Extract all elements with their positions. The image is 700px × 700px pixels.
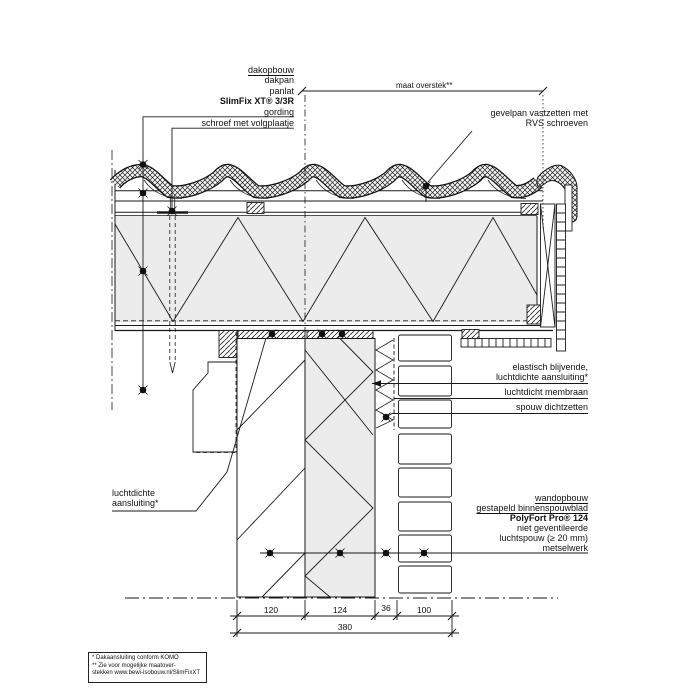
wall-stack-item-metselwerk: metselwerk <box>476 543 588 553</box>
wall-insulation <box>305 339 375 598</box>
dim-segment-120: 120 <box>251 605 291 615</box>
wall-stack-title: wandopbouw <box>476 493 588 503</box>
roof-section <box>115 165 577 351</box>
roof-stack-item-dakpan: dakpan <box>220 75 294 85</box>
roof-stack-item-slimfix: SlimFix XT® 3/3R <box>220 96 294 106</box>
overhang-dim-label: maat overstek** <box>396 81 452 91</box>
footnote-box: * Dakaansluiting conform KOMO ** Zie voo… <box>88 652 207 683</box>
wall-section <box>193 331 452 598</box>
verge-tile-label: gevelpan vastzetten met RVS schroeven <box>490 108 588 129</box>
detail-drawing <box>0 0 700 700</box>
wall-stack-label: wandopbouw gestapeld binnenspouwblad Pol… <box>476 493 588 553</box>
roof-stack-label: dakopbouw dakpan panlat SlimFix XT® 3/3R… <box>220 65 294 117</box>
dim-segment-36: 36 <box>366 603 406 613</box>
membrane-label: luchtdicht membraan <box>504 387 588 397</box>
airtight-left-label-line1: luchtdichte <box>112 488 159 498</box>
cavity-close-label: spouw dichtzetten <box>516 402 588 412</box>
footnote-line2: ** Zie voor mogelijke maatover- <box>92 663 206 671</box>
dim-total-380: 380 <box>325 622 365 632</box>
ventilation-comb-vertical <box>557 204 566 351</box>
elastic-seal-label-line1: elastisch blijvende, <box>496 362 588 372</box>
elastic-seal-label: elastisch blijvende, luchtdichte aanslui… <box>496 362 588 383</box>
construction-detail-page: dakopbouw dakpan panlat SlimFix XT® 3/3R… <box>0 0 700 700</box>
roof-stack-title: dakopbouw <box>220 65 294 75</box>
roof-tiles <box>115 171 538 199</box>
footnote-line3: stekken www.bewi-isobouw.nl/SlimFixXT <box>92 670 206 678</box>
footnote-line1: * Dakaansluiting conform KOMO <box>92 655 206 663</box>
roof-stack-item-panlat: panlat <box>220 86 294 96</box>
screw-label: schroef met volgplaatje <box>201 118 294 128</box>
edge-block <box>219 331 237 358</box>
inner-leaf <box>237 339 305 598</box>
wall-stack-item-polyfort: PolyFort Pro® 124 <box>476 513 588 523</box>
airtight-left-label: luchtdichte aansluiting* <box>112 488 159 509</box>
dim-segment-124: 124 <box>320 605 360 615</box>
dim-segment-100: 100 <box>404 605 444 615</box>
wall-stack-item-binnenspouwblad: gestapeld binnenspouwblad <box>476 503 588 513</box>
verge-tile-label-line1: gevelpan vastzetten met <box>490 108 588 118</box>
roof-stack-item-gording: gording <box>220 107 294 117</box>
verge-tile-label-line2: RVS schroeven <box>490 118 588 128</box>
wall-stack-item-luchtspouw: luchtspouw (≥ 20 mm) <box>476 533 588 543</box>
wall-stack-item-nietgeventileerde: niet geventileerde <box>476 523 588 533</box>
ventilation-comb-horizontal <box>461 339 551 348</box>
trim-profile <box>193 362 237 452</box>
elastic-seal-label-line2: luchtdichte aansluiting* <box>496 372 588 382</box>
airtight-left-label-line2: aansluiting* <box>112 498 159 508</box>
